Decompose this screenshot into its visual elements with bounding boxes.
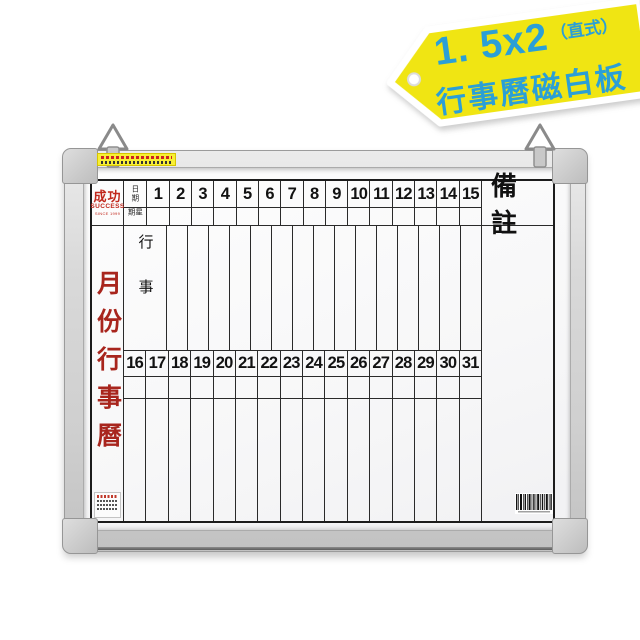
corner-cap-top-left: [62, 148, 98, 184]
empty-cell: [348, 377, 370, 398]
day-number-cell: 27: [370, 351, 392, 376]
maker-label-line: [97, 504, 118, 506]
schedule-column: [146, 399, 168, 521]
empty-cell: [192, 208, 214, 225]
maker-label-line: [97, 495, 118, 498]
schedule-column: [281, 399, 303, 521]
schedule-column: [251, 226, 272, 350]
schedule-column: [356, 226, 377, 350]
date-label-cell: 日期: [124, 181, 147, 207]
schedule-column: [437, 399, 459, 521]
empty-week-cells: [124, 377, 482, 398]
day-number-cell: 29: [415, 351, 437, 376]
week-label: 星期: [128, 208, 143, 225]
schedule-column: [461, 226, 482, 350]
schedule-column: [303, 399, 325, 521]
barcode: [515, 493, 553, 514]
empty-cell: [191, 377, 213, 398]
whiteboard: 成功 SUCCESS SINCE 1999 月份行事曆: [64, 150, 586, 552]
empty-cell: [281, 208, 303, 225]
empty-cell: [370, 377, 392, 398]
corner-cap-bottom-right: [552, 518, 588, 554]
day-number-cell: 25: [325, 351, 347, 376]
empty-cell: [415, 208, 437, 225]
empty-cell: [325, 377, 347, 398]
empty-cell: [258, 377, 280, 398]
day-number-cell: 3: [192, 181, 214, 207]
brand-logo-since: SINCE 1999: [95, 211, 120, 216]
frame-spec-sticker: [97, 153, 176, 166]
sticker-text-line: [101, 156, 172, 159]
empty-cell: [259, 208, 281, 225]
empty-cell: [460, 208, 482, 225]
schedule-column: [440, 226, 461, 350]
day-number-cell: 23: [281, 351, 303, 376]
schedule-column: [191, 399, 213, 521]
schedule-column: [169, 399, 191, 521]
day-number-cell: 12: [393, 181, 415, 207]
day-number-cell: 1: [147, 181, 169, 207]
empty-cell: [304, 208, 326, 225]
day-number-cell: 4: [214, 181, 236, 207]
empty-cell: [147, 208, 169, 225]
day-number-cell: 26: [348, 351, 370, 376]
day-number-cell: 15: [460, 181, 482, 207]
events-label-cell: 行事: [124, 226, 167, 350]
schedule-column: [377, 226, 398, 350]
day-number-cell: 18: [169, 351, 191, 376]
schedule-column: [398, 226, 419, 350]
schedule-column: [348, 399, 370, 521]
empty-week-cells: [147, 208, 482, 225]
day-number-cell: 8: [304, 181, 326, 207]
day-number-cell: 22: [258, 351, 280, 376]
weekday-row-second-half: [124, 377, 482, 399]
notes-body: [482, 226, 553, 521]
day-number-cell: 10: [348, 181, 370, 207]
empty-cell: [214, 377, 236, 398]
schedule-column: [335, 226, 356, 350]
empty-cell: [460, 377, 482, 398]
schedule-column: [393, 399, 415, 521]
schedule-column: [230, 226, 251, 350]
brand-logo: 成功 SUCCESS SINCE 1999: [92, 181, 123, 226]
schedule-column: [314, 226, 335, 350]
day-number-cell: 28: [393, 351, 415, 376]
maker-label-line: [97, 508, 118, 510]
day-number-cell: 2: [170, 181, 192, 207]
week-label-cell: 星期: [124, 208, 147, 225]
day-number-cell: 7: [281, 181, 303, 207]
title-area: 月份行事曆: [92, 226, 123, 521]
empty-cell: [393, 377, 415, 398]
day-number-cell: 16: [124, 351, 146, 376]
day-number-cells: 16171819202122232425262728293031: [124, 351, 482, 376]
days-columns: 日期 123456789101112131415 星期: [124, 181, 482, 521]
schedule-columns: [167, 226, 482, 350]
schedule-column: [236, 399, 258, 521]
date-label: 日期: [131, 185, 139, 203]
schedule-column: [419, 226, 440, 350]
empty-cell: [170, 208, 192, 225]
schedule-column: [293, 226, 314, 350]
day-number-cell: 30: [437, 351, 459, 376]
schedule-column: [167, 226, 188, 350]
empty-cell: [437, 377, 459, 398]
empty-cell: [348, 208, 370, 225]
events-label: 行事: [135, 234, 156, 324]
board-surface: 成功 SUCCESS SINCE 1999 月份行事曆: [83, 167, 571, 531]
schedule-column: [460, 399, 482, 521]
empty-cell: [237, 208, 259, 225]
aluminum-frame: 成功 SUCCESS SINCE 1999 月份行事曆: [64, 150, 586, 552]
empty-cell: [236, 377, 258, 398]
board-title-vertical: 月份行事曆: [90, 270, 126, 460]
empty-cell: [415, 377, 437, 398]
schedule-column: [209, 226, 230, 350]
schedule-columns: [124, 399, 482, 521]
badge-orientation-text: （直式）: [548, 10, 619, 44]
day-number-cell: 13: [415, 181, 437, 207]
tag-hole: [407, 73, 421, 87]
schedule-column: [188, 226, 209, 350]
empty-cell: [303, 377, 325, 398]
sticker-text-line: [101, 161, 172, 164]
brand-logo-en: SUCCESS: [90, 203, 124, 211]
empty-cell: [393, 208, 415, 225]
day-number-cell: 11: [370, 181, 392, 207]
empty-cell: [326, 208, 348, 225]
weekday-row-first-half: 星期: [124, 208, 482, 226]
day-number-cell: 20: [214, 351, 236, 376]
schedule-column: [272, 226, 293, 350]
day-number-cell: 21: [236, 351, 258, 376]
schedule-column: [258, 399, 280, 521]
calendar-grid: 成功 SUCCESS SINCE 1999 月份行事曆: [90, 179, 555, 523]
empty-cell: [370, 208, 392, 225]
day-number-cell: 19: [191, 351, 213, 376]
empty-cell: [169, 377, 191, 398]
promo-badge: 1. 5x2 （直式） 行事曆磁白板: [378, 0, 640, 144]
day-number-cells: 123456789101112131415: [147, 181, 482, 207]
day-number-cell: 6: [259, 181, 281, 207]
date-header-row-second-half: 16171819202122232425262728293031: [124, 351, 482, 377]
title-column: 成功 SUCCESS SINCE 1999 月份行事曆: [92, 181, 124, 521]
empty-cell: [146, 377, 168, 398]
day-number-cell: 24: [303, 351, 325, 376]
maker-label-line: [97, 500, 118, 502]
empty-cell: [124, 377, 146, 398]
day-number-cell: 5: [237, 181, 259, 207]
schedule-column: [214, 399, 236, 521]
schedule-area-second-half: [124, 399, 482, 521]
day-number-cell: 17: [146, 351, 168, 376]
schedule-column: [325, 399, 347, 521]
schedule-column: [415, 399, 437, 521]
maker-label: [94, 492, 121, 518]
empty-cell: [214, 208, 236, 225]
corner-cap-bottom-left: [62, 518, 98, 554]
empty-cell: [281, 377, 303, 398]
brand-logo-cn: 成功: [93, 190, 121, 203]
notes-column: 備註: [482, 181, 553, 521]
notes-header: 備註: [482, 181, 553, 226]
date-header-row-first-half: 日期 123456789101112131415: [124, 181, 482, 208]
empty-cell: [437, 208, 459, 225]
schedule-area-first-half: 行事: [124, 226, 482, 351]
schedule-column: [370, 399, 392, 521]
day-number-cell: 9: [326, 181, 348, 207]
hanging-hook-right: [522, 122, 558, 170]
day-number-cell: 31: [460, 351, 482, 376]
schedule-column: [124, 399, 146, 521]
day-number-cell: 14: [437, 181, 459, 207]
